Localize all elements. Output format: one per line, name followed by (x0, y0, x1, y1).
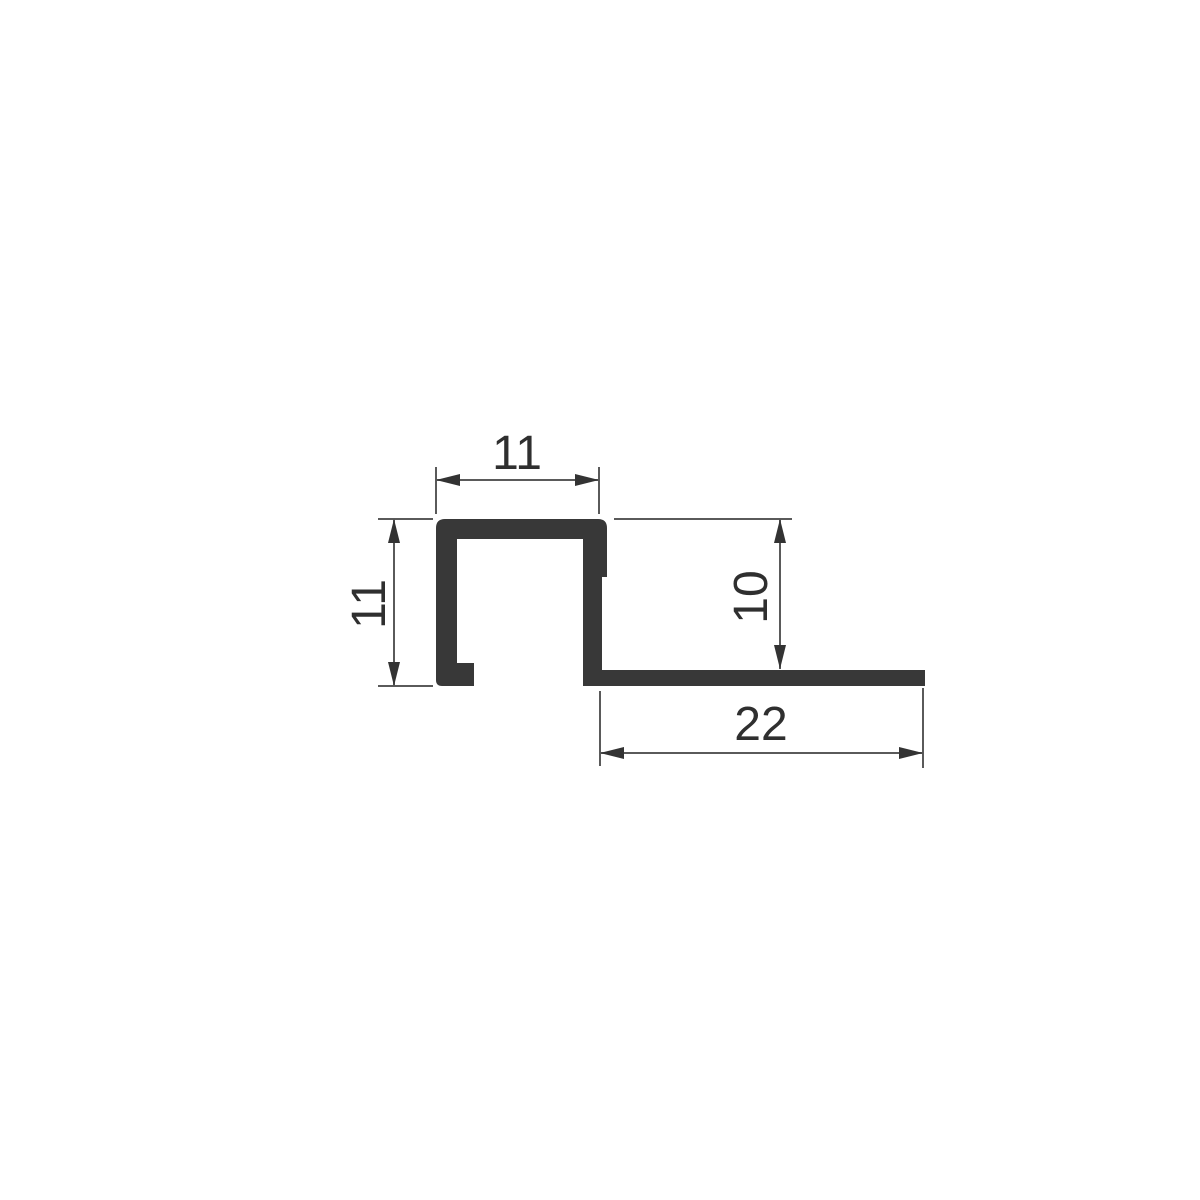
dimension-label-left-height: 11 (343, 579, 396, 629)
arrowhead-down-icon (388, 662, 400, 686)
dimension-bottom-length: 22 (600, 688, 923, 768)
arrowhead-left-icon (436, 474, 460, 486)
arrowhead-up-icon (388, 519, 400, 543)
dimension-label-top-width: 11 (492, 427, 542, 480)
dimension-right-depth: 10 (614, 519, 792, 669)
arrowhead-right-icon (899, 747, 923, 759)
drawing-canvas: 11 11 10 22 (0, 0, 1200, 1200)
arrowhead-right-icon (575, 474, 599, 486)
technical-drawing: 11 11 10 22 (0, 0, 1200, 1200)
profile-cross-section-shape (436, 519, 925, 686)
arrowhead-left-icon (600, 747, 624, 759)
dimension-label-right-depth: 10 (725, 570, 778, 623)
arrowhead-down-icon (774, 645, 786, 669)
dimension-left-height: 11 (343, 519, 433, 686)
dimension-label-bottom-length: 22 (734, 698, 787, 751)
dimension-top-width: 11 (436, 427, 599, 514)
arrowhead-up-icon (774, 519, 786, 543)
